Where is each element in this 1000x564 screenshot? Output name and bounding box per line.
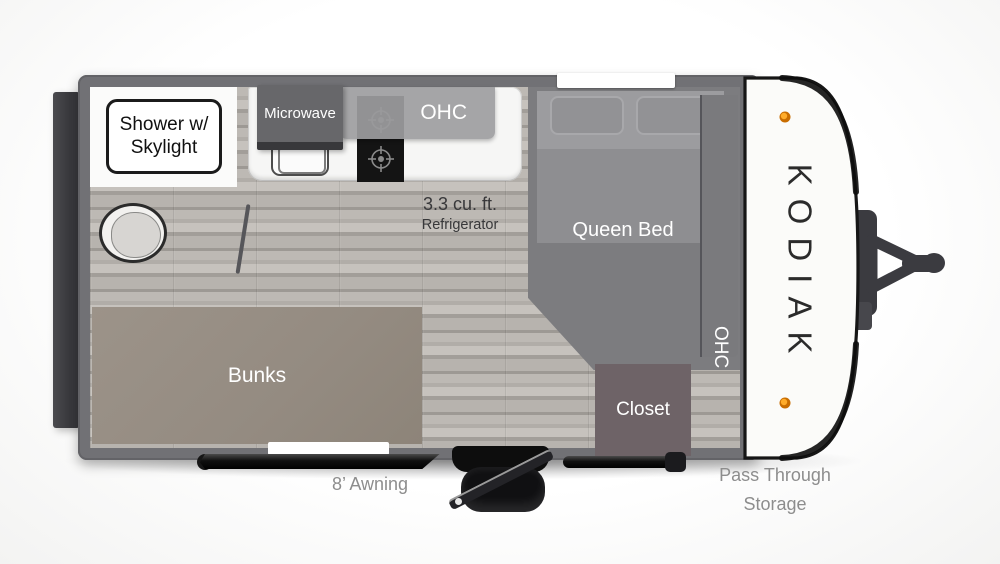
refrigerator-text: Refrigerator bbox=[395, 217, 525, 233]
awning-label: 8’ Awning bbox=[300, 474, 440, 495]
entry-step-rail bbox=[563, 456, 675, 468]
microwave-label: Microwave bbox=[264, 105, 336, 122]
burner-icon bbox=[366, 144, 396, 174]
refrigerator-size: 3.3 cu. ft. bbox=[395, 194, 525, 215]
shower-label-line1: Shower w/ bbox=[120, 114, 209, 137]
pass-through-storage-label: Pass Through Storage bbox=[695, 461, 855, 519]
closet-label: Closet bbox=[616, 399, 670, 421]
kitchen-ohc-label: OHC bbox=[420, 101, 467, 125]
spring-bolt bbox=[455, 498, 462, 505]
rear-bumper bbox=[53, 92, 80, 428]
bunks-area: Bunks bbox=[92, 307, 422, 444]
pass-through-line2: Storage bbox=[695, 490, 855, 519]
pillow-icon bbox=[636, 96, 710, 135]
rail-end-knob bbox=[665, 452, 686, 472]
refrigerator-label: 3.3 cu. ft. Refrigerator bbox=[395, 194, 525, 233]
closet-area: Closet bbox=[595, 364, 691, 456]
shower-label: Shower w/ Skylight bbox=[106, 99, 222, 174]
brand-logo: KODIAK bbox=[733, 165, 865, 365]
marker-light bbox=[780, 398, 791, 409]
pass-through-line1: Pass Through bbox=[695, 461, 855, 490]
window bbox=[557, 73, 675, 88]
kitchen-overhead-cabinet: OHC bbox=[340, 87, 495, 139]
bedroom-ohc-label: OHC bbox=[709, 326, 731, 362]
brand-text: KODIAK bbox=[780, 164, 818, 367]
queen-bed-label: Queen Bed bbox=[537, 219, 709, 242]
marker-light bbox=[780, 112, 791, 123]
shower-label-line2: Skylight bbox=[131, 137, 198, 160]
toilet-bowl bbox=[111, 212, 161, 258]
awning-rail bbox=[200, 454, 447, 469]
microwave: Microwave bbox=[257, 85, 343, 150]
pillow-icon bbox=[550, 96, 624, 135]
bunks-label: Bunks bbox=[228, 364, 286, 388]
floorplan-canvas: Shower w/ Skylight Bunks OHC bbox=[0, 0, 1000, 564]
toilet-icon bbox=[99, 203, 167, 263]
window bbox=[268, 442, 389, 455]
